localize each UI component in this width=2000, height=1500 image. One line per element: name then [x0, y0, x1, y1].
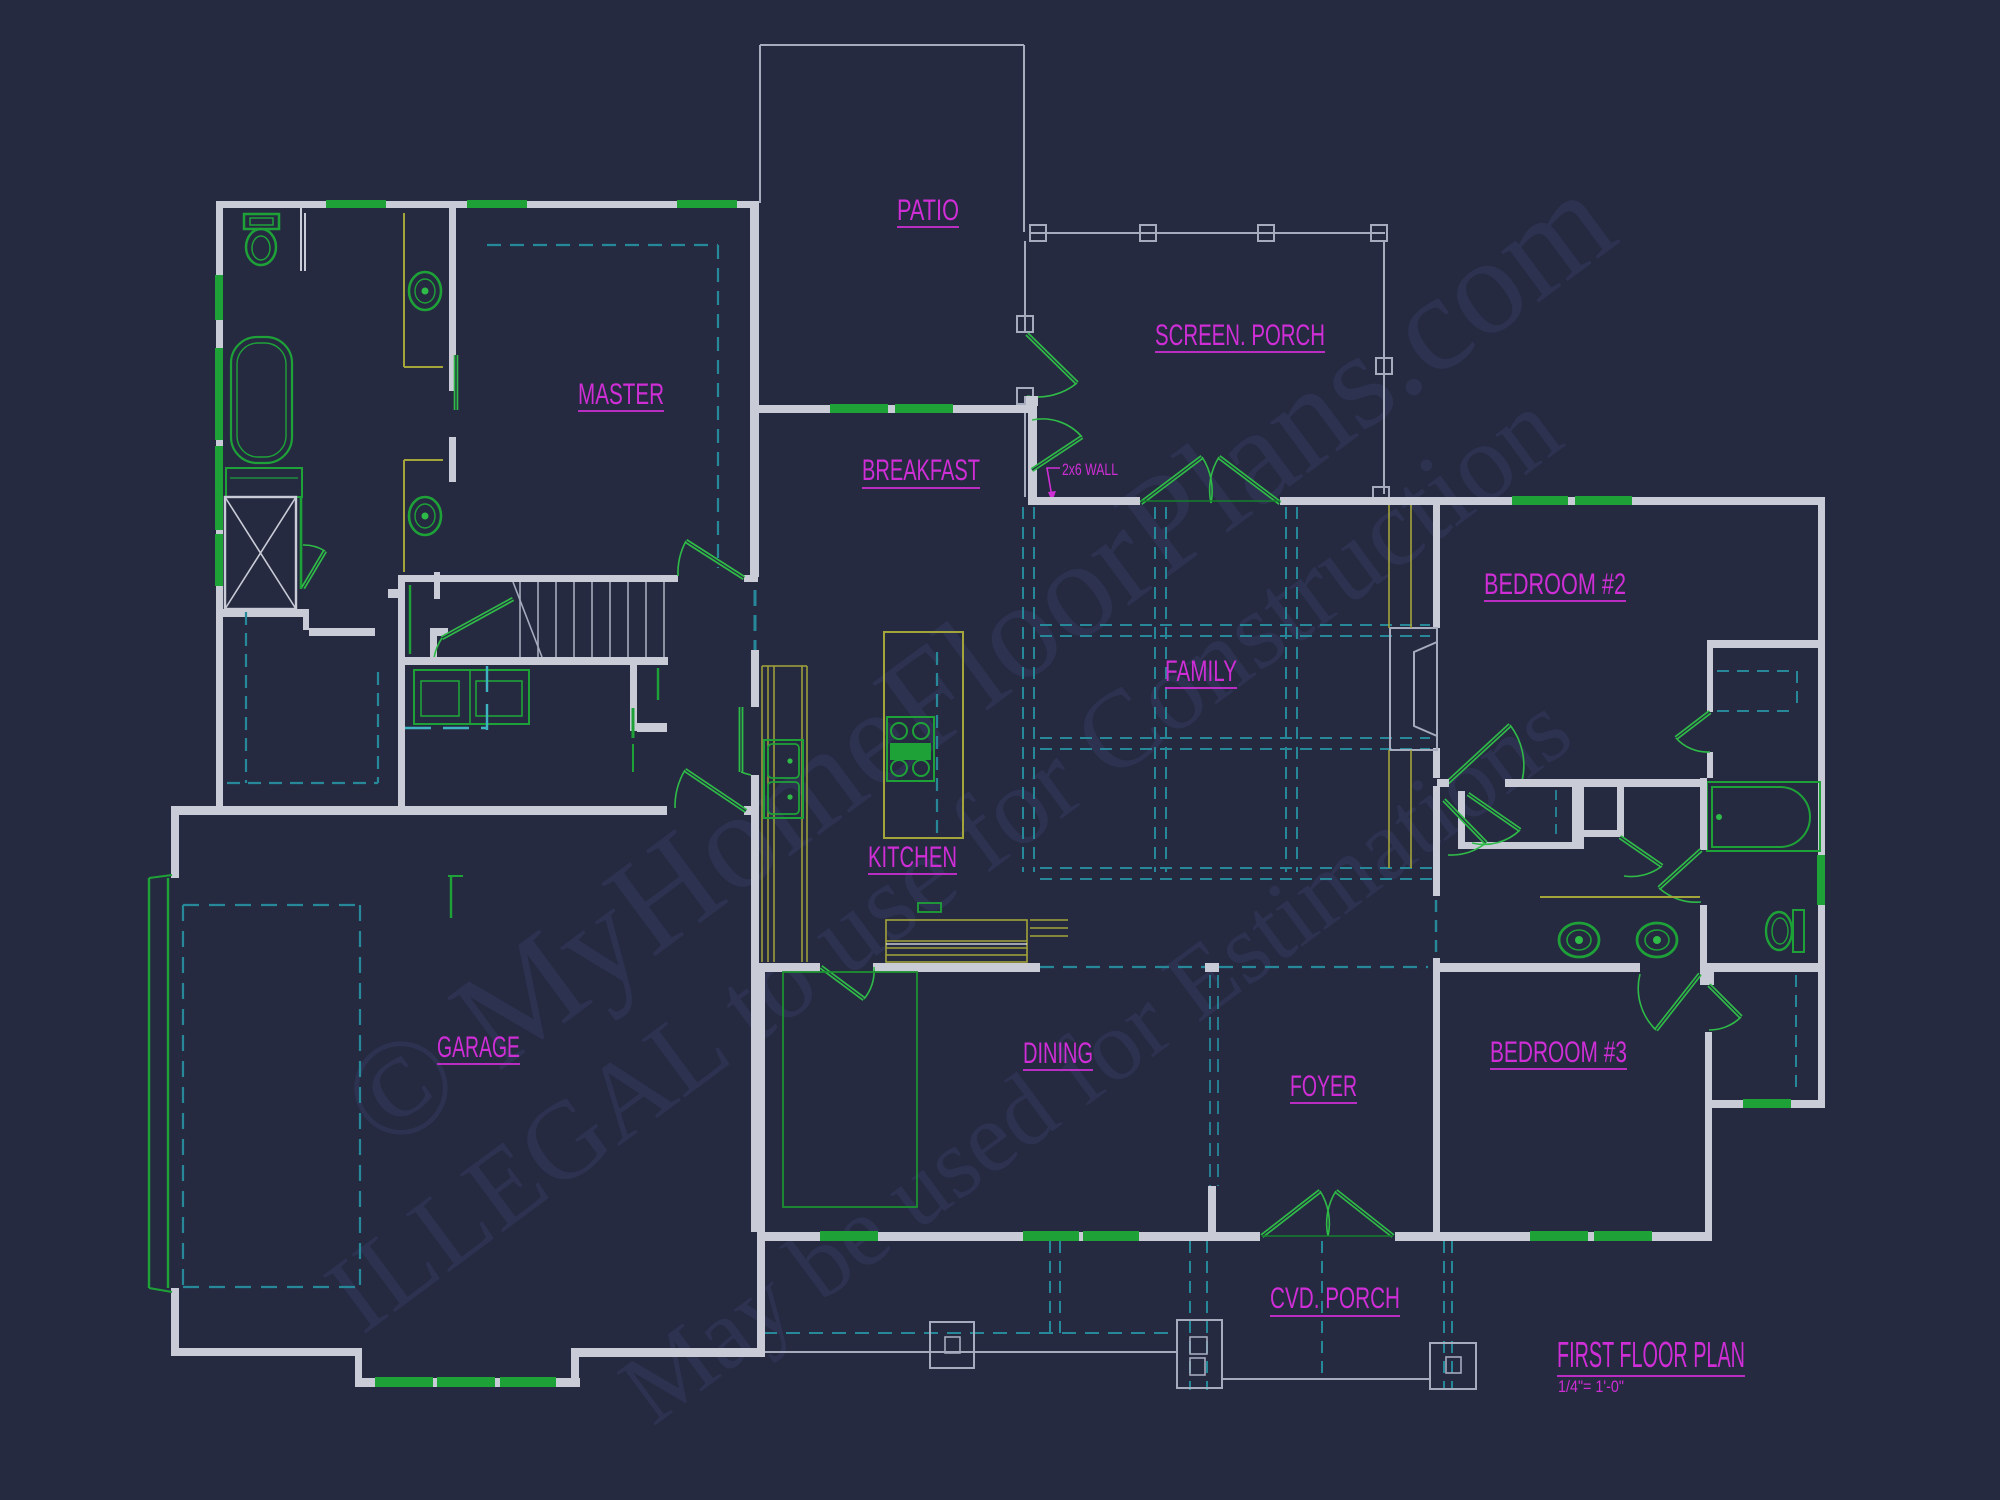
svg-text:MASTER: MASTER [578, 378, 664, 411]
svg-text:FIRST FLOOR PLAN: FIRST FLOOR PLAN [1557, 1334, 1745, 1375]
svg-text:FAMILY: FAMILY [1165, 655, 1237, 688]
svg-text:BEDROOM #3: BEDROOM #3 [1490, 1036, 1627, 1069]
svg-text:DINING: DINING [1023, 1037, 1093, 1070]
svg-text:KITCHEN: KITCHEN [868, 841, 957, 874]
svg-text:1/4"= 1'-0": 1/4"= 1'-0" [1558, 1377, 1624, 1396]
svg-text:SCREEN. PORCH: SCREEN. PORCH [1155, 319, 1325, 352]
svg-text:BREAKFAST: BREAKFAST [862, 454, 980, 487]
svg-text:GARAGE: GARAGE [437, 1031, 520, 1064]
svg-text:PATIO: PATIO [897, 194, 959, 227]
svg-text:CVD. PORCH: CVD. PORCH [1270, 1282, 1400, 1315]
svg-text:BEDROOM #2: BEDROOM #2 [1484, 568, 1626, 601]
svg-text:FOYER: FOYER [1290, 1070, 1357, 1103]
svg-text:2x6 WALL: 2x6 WALL [1062, 460, 1118, 479]
